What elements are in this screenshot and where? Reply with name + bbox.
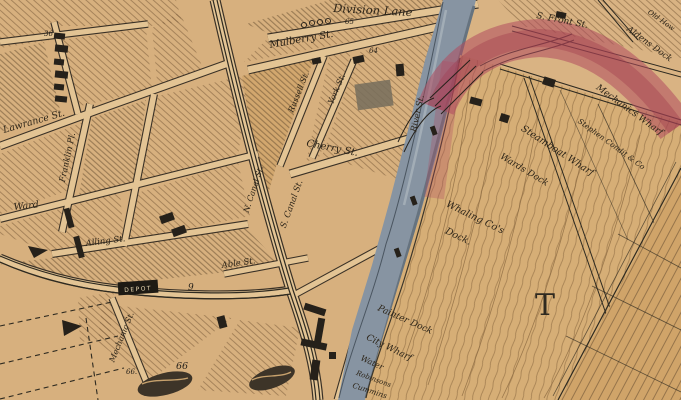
number-64: 64 — [369, 47, 378, 55]
historic-map-screenshot: DEPOT Division Lane Mulberry St. S. Fron… — [0, 0, 681, 400]
number-36: 36 — [44, 30, 53, 38]
number-66a: 66 — [176, 361, 188, 372]
number-66b: 66. — [126, 368, 137, 376]
number-9: 9 — [188, 283, 194, 293]
railroad-depot: DEPOT — [118, 280, 159, 296]
historic-map: DEPOT Division Lane Mulberry St. S. Fron… — [0, 0, 681, 400]
label-big-letter-t: T — [535, 288, 555, 323]
building-smudge — [354, 80, 393, 111]
number-65: 65 — [345, 18, 354, 26]
